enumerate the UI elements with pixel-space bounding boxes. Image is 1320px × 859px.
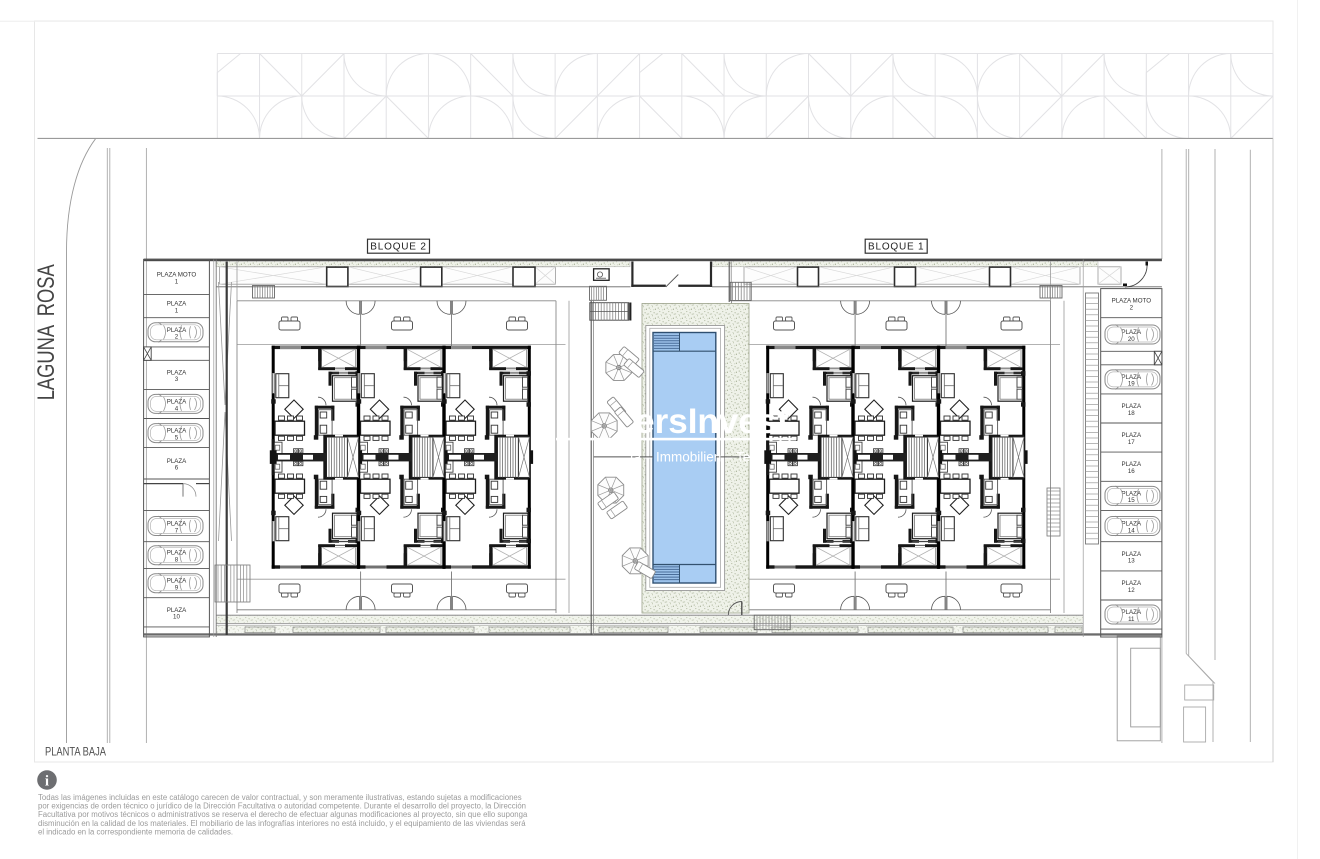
svg-text:LAGUNA ROSA: LAGUNA ROSA bbox=[33, 264, 60, 400]
svg-text:10: 10 bbox=[173, 614, 180, 621]
svg-text:3: 3 bbox=[175, 376, 179, 383]
svg-text:1: 1 bbox=[175, 278, 179, 285]
svg-text:PLANTA BAJA: PLANTA BAJA bbox=[45, 745, 106, 759]
svg-text:18: 18 bbox=[1128, 410, 1135, 417]
svg-text:16: 16 bbox=[1128, 468, 1135, 475]
svg-text:12: 12 bbox=[1128, 587, 1135, 594]
svg-text:el indicado en la correspondie: el indicado en la correspondiente memori… bbox=[38, 827, 233, 836]
svg-text:1: 1 bbox=[175, 307, 179, 314]
svg-text:i: i bbox=[45, 773, 49, 789]
svg-text:BLOQUE 2: BLOQUE 2 bbox=[370, 242, 426, 253]
svg-text:BLOQUE 1: BLOQUE 1 bbox=[868, 242, 924, 253]
svg-text:ersInvest: ersInvest bbox=[635, 402, 789, 441]
svg-text:13: 13 bbox=[1128, 558, 1135, 565]
svg-text:17: 17 bbox=[1128, 439, 1135, 446]
svg-text:ía – Immobilien – Te: ía – Immobilien – Te bbox=[630, 450, 751, 465]
svg-text:6: 6 bbox=[175, 465, 179, 472]
svg-text:2: 2 bbox=[1130, 304, 1134, 311]
